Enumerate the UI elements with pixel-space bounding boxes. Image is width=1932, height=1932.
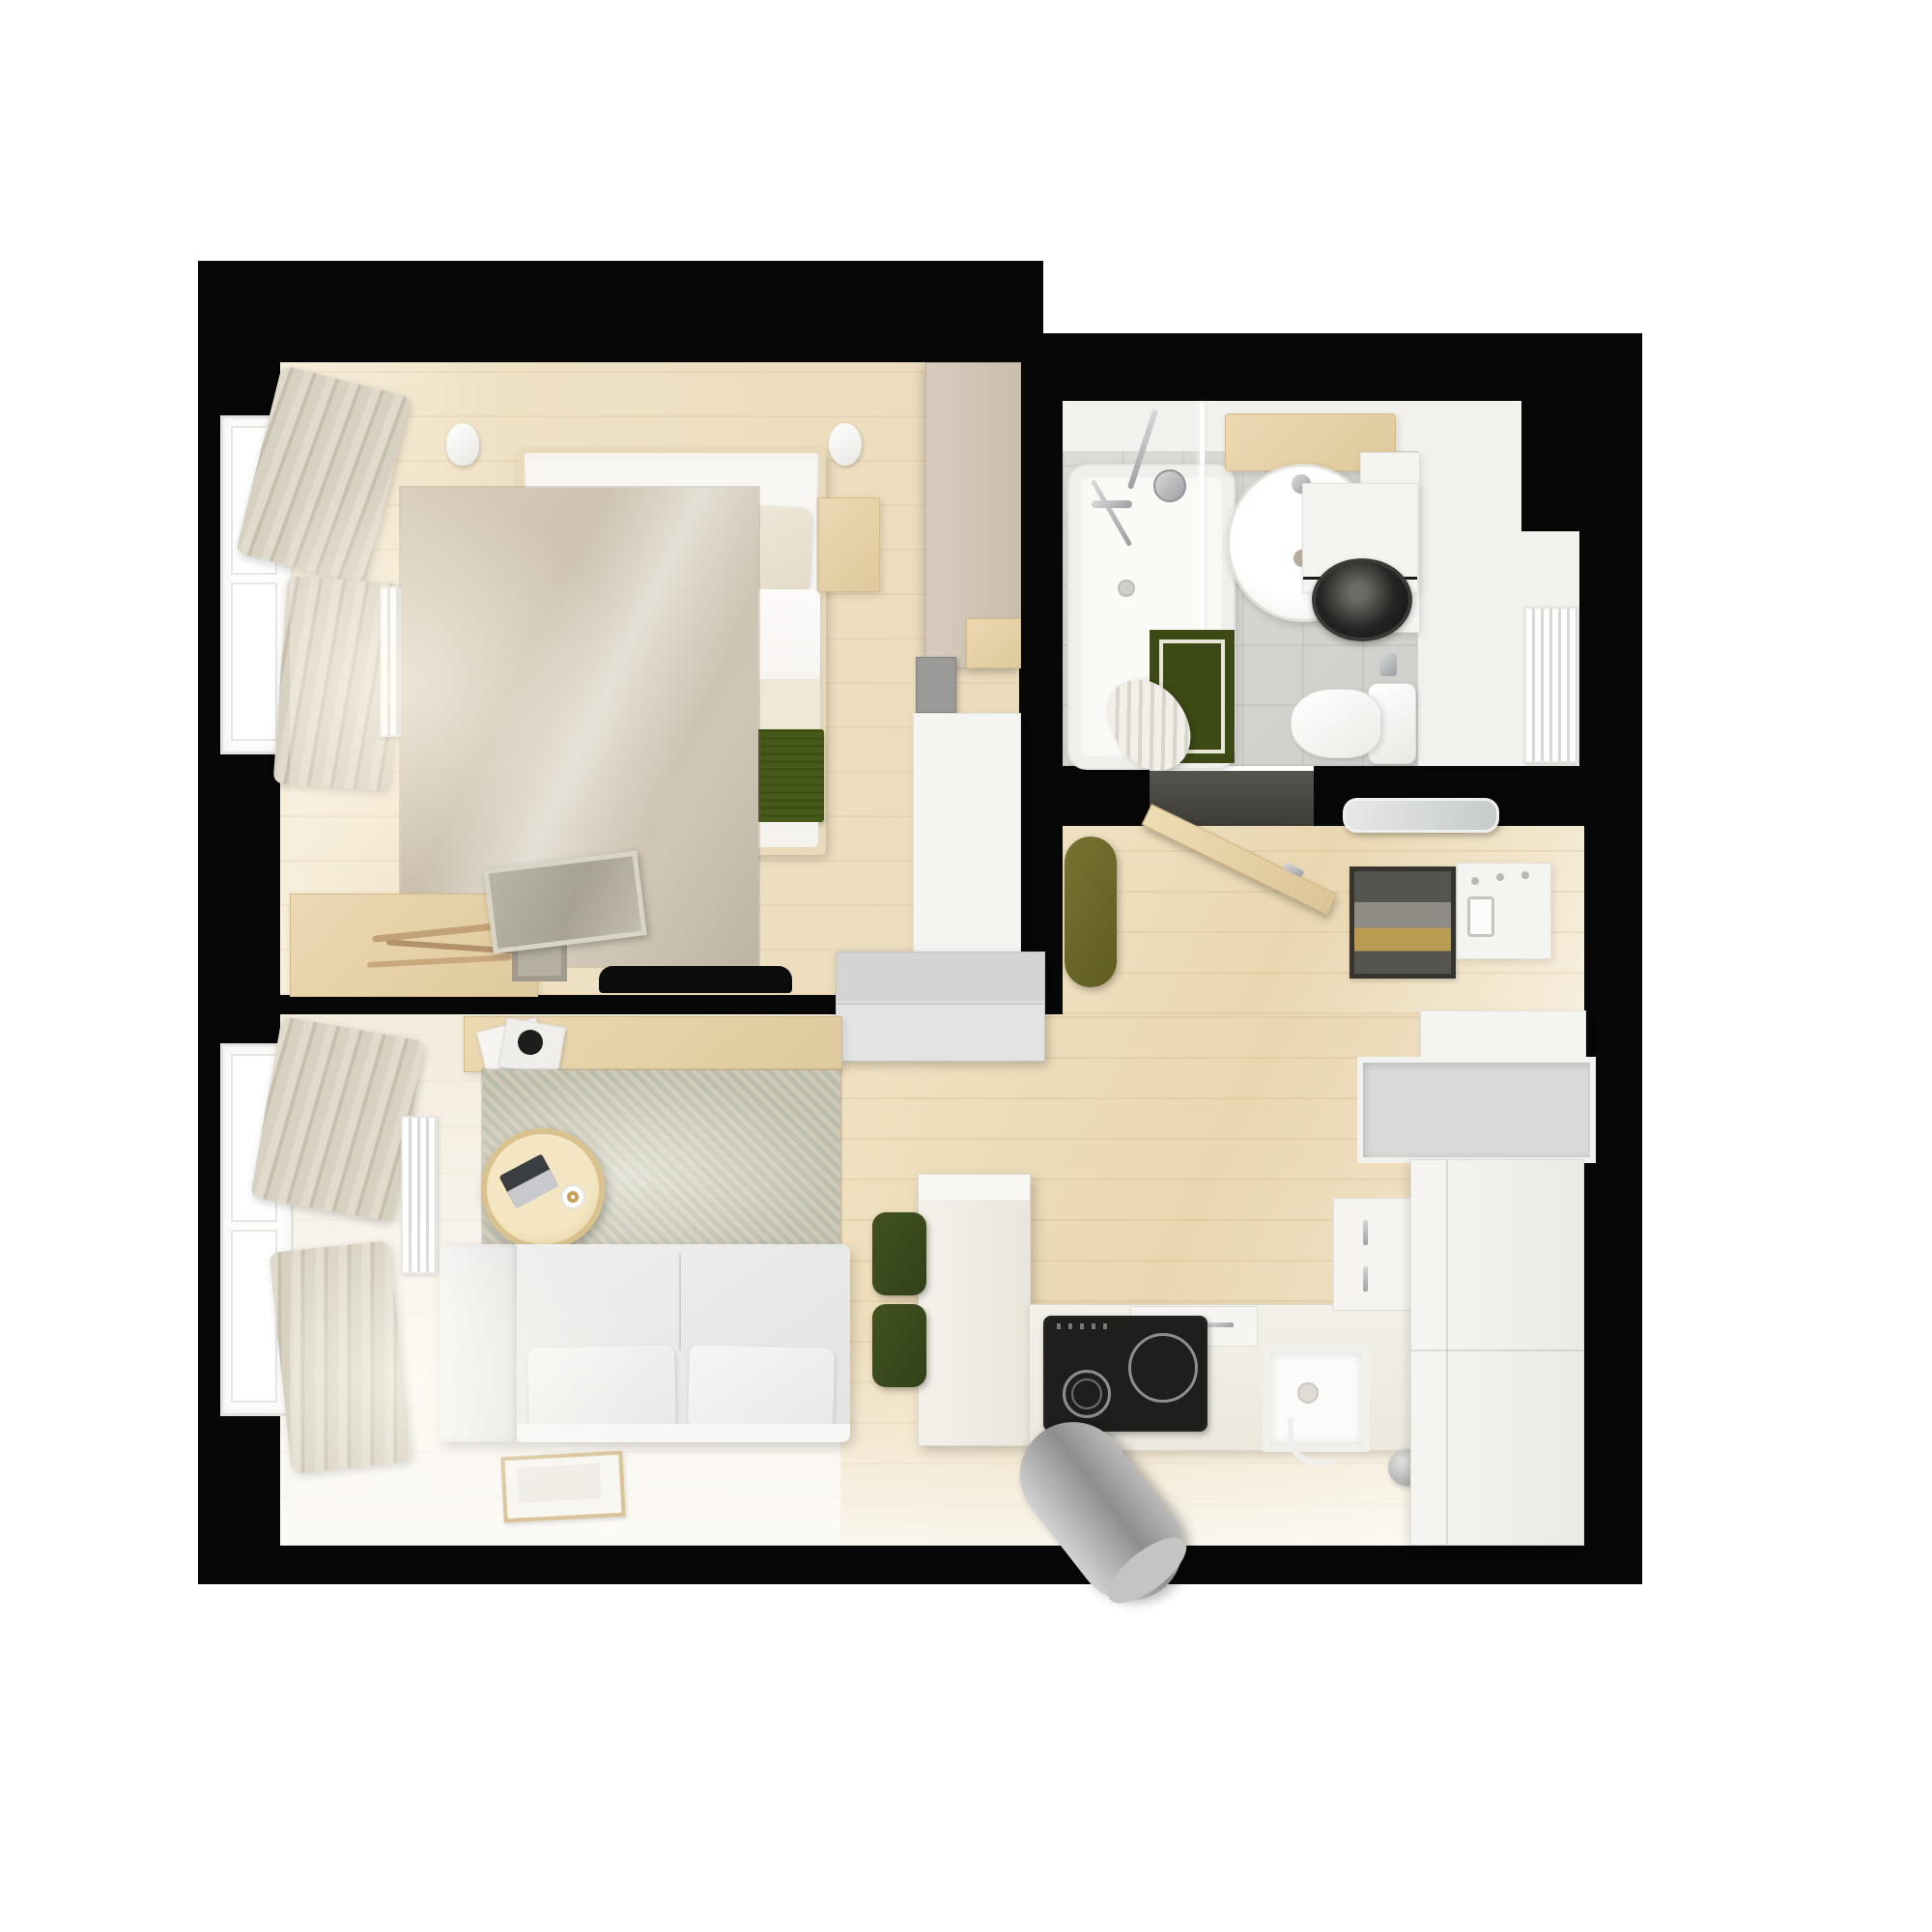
entry-sideboard	[1420, 1010, 1586, 1059]
wall-bathroom-hall-divider-left	[1063, 766, 1150, 826]
wall-bedroom-hall-divider	[1019, 362, 1063, 1014]
hob-ring-large	[1128, 1333, 1198, 1403]
cabinet-handle	[1363, 1266, 1368, 1292]
washing-machine-drum	[1312, 558, 1412, 641]
laptop	[498, 1153, 557, 1207]
sink-drain	[1297, 1382, 1319, 1404]
coat-hook	[1471, 877, 1479, 885]
shower-head	[1153, 469, 1186, 502]
sofa-armrest	[440, 1244, 517, 1442]
cabinet-handle	[1363, 1220, 1368, 1245]
mounted-tv-panel	[916, 657, 956, 713]
frame-inner	[517, 1463, 602, 1502]
wall-mirror	[1343, 798, 1499, 833]
bar-stool-1	[872, 1212, 926, 1295]
sofa-cushion-right	[688, 1345, 835, 1432]
laptop-lid	[507, 1169, 559, 1208]
floor-plan-render	[0, 0, 1932, 1932]
shower-rail	[1127, 409, 1158, 490]
driftwood-branch	[367, 954, 512, 968]
wall-right-lower	[1584, 782, 1642, 1584]
coat-hook	[1521, 871, 1529, 879]
olive-pouf	[1065, 837, 1117, 987]
toilet	[1291, 681, 1416, 764]
side-cabinet-fronts	[1333, 1198, 1412, 1311]
living-radiator	[401, 1116, 438, 1274]
wall-lamp-right	[829, 423, 862, 466]
coat-hook-panel	[1457, 863, 1551, 959]
round-coffee-table	[481, 1128, 605, 1250]
hob-ring-small	[1063, 1370, 1111, 1418]
bedroom-tv	[599, 966, 792, 993]
sofa-backrest-edge	[517, 1424, 850, 1442]
induction-hob	[1043, 1316, 1207, 1432]
bathtub-drain	[1118, 580, 1135, 597]
sofa-cushion-left	[527, 1346, 675, 1432]
storage-niche	[1357, 1057, 1596, 1163]
hob-controls	[1057, 1323, 1115, 1329]
striped-doormat	[1350, 867, 1456, 979]
kitchen-island	[918, 1174, 1031, 1446]
coat-hook-rail	[1467, 896, 1494, 937]
cabinet-seam	[837, 1003, 1044, 1005]
media-cabinet	[836, 952, 1045, 1062]
wardrobe-shelf	[966, 618, 1021, 668]
magazine-cover-art	[518, 1030, 543, 1055]
living-curtain-lower	[269, 1240, 412, 1474]
sofa-seat-seam	[679, 1254, 681, 1350]
wall-bottom	[198, 1546, 1642, 1584]
hand-shower	[1090, 406, 1206, 531]
wall-top-bathroom	[1043, 333, 1584, 401]
bar-stool-2	[872, 1304, 926, 1387]
towel-radiator	[1524, 607, 1578, 763]
toilet-paper-holder	[1379, 653, 1397, 676]
bathroom-wall-face-right	[1418, 401, 1521, 766]
kitchen-sink	[1263, 1346, 1370, 1452]
wall-lamp-left	[446, 423, 479, 466]
nightstand-right	[818, 497, 880, 592]
coat-hook	[1496, 873, 1504, 881]
wall-right-bathroom-block	[1521, 333, 1642, 531]
floor-frame	[500, 1451, 625, 1523]
sofa	[440, 1244, 850, 1442]
wall-top-bedroom	[198, 261, 1043, 362]
tub-faucet	[1092, 500, 1132, 508]
toilet-bowl	[1291, 689, 1381, 758]
tall-cabinets	[1410, 1159, 1584, 1546]
drawer-handle	[1207, 1322, 1234, 1327]
cabinet-seam	[1411, 1350, 1583, 1351]
window-pane	[231, 582, 277, 741]
island-top-bevel	[919, 1175, 1030, 1200]
wall-right-niche-side	[1579, 531, 1642, 782]
coffee-cup	[560, 1184, 585, 1209]
cabinet-seam	[1446, 1160, 1448, 1545]
